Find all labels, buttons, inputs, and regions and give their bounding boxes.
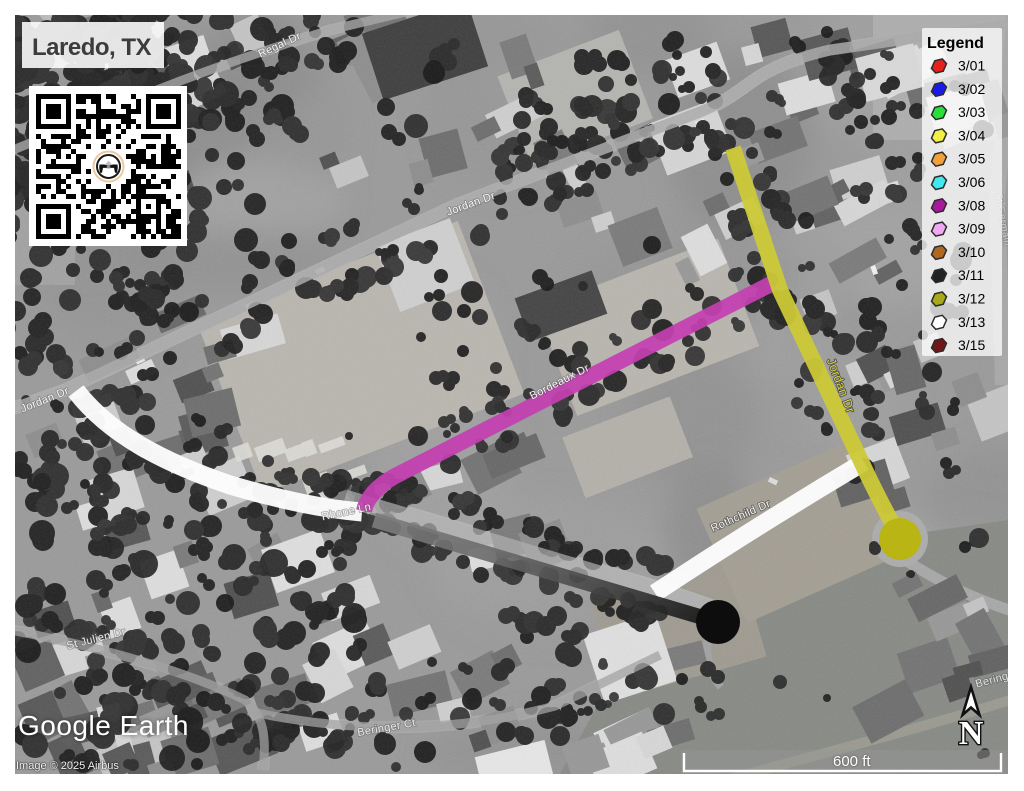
svg-text:3/05: 3/05 (958, 151, 985, 167)
svg-text:3/11: 3/11 (958, 267, 984, 283)
svg-text:3/10: 3/10 (958, 244, 985, 260)
svg-text:3/06: 3/06 (958, 174, 985, 190)
svg-text:N: N (959, 715, 984, 752)
svg-text:3/09: 3/09 (958, 221, 985, 237)
svg-text:3/01: 3/01 (958, 58, 985, 74)
svg-text:3/02: 3/02 (958, 81, 985, 97)
svg-text:3/13: 3/13 (958, 314, 985, 330)
svg-text:3/12: 3/12 (958, 291, 985, 307)
svg-text:3/15: 3/15 (958, 337, 985, 353)
svg-text:3/08: 3/08 (958, 197, 985, 213)
svg-text:3/04: 3/04 (958, 127, 985, 143)
svg-text:Legend: Legend (927, 35, 984, 52)
svg-text:3/03: 3/03 (958, 104, 985, 120)
